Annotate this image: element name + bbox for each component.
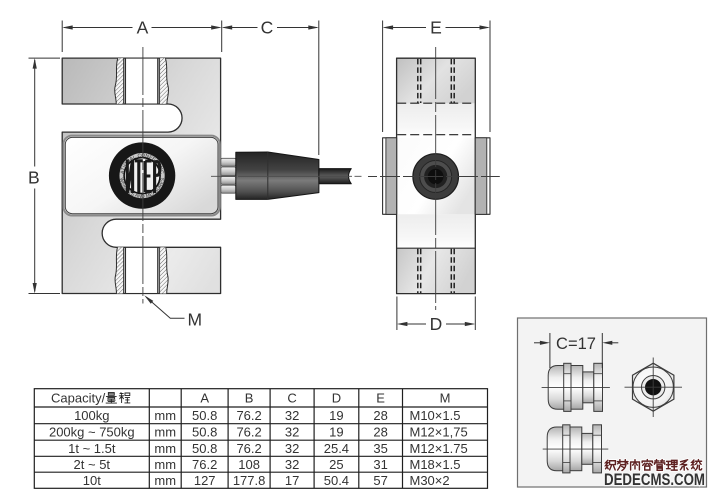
svg-text:108: 108 [238, 457, 260, 472]
svg-text:31: 31 [373, 457, 387, 472]
svg-text:25: 25 [329, 457, 343, 472]
svg-text:mm: mm [154, 408, 176, 423]
svg-text:M18×1.5: M18×1.5 [410, 457, 461, 472]
svg-text:127: 127 [194, 473, 216, 488]
svg-text:M12×1.75: M12×1.75 [410, 441, 468, 456]
svg-text:19: 19 [329, 425, 343, 440]
svg-text:32: 32 [285, 457, 299, 472]
svg-text:mm: mm [154, 425, 176, 440]
svg-text:C: C [261, 18, 274, 38]
svg-text:200kg ~ 750kg: 200kg ~ 750kg [49, 425, 135, 440]
svg-text:D: D [430, 314, 443, 334]
svg-text:32: 32 [285, 408, 299, 423]
svg-text:M10×1.5: M10×1.5 [410, 408, 461, 423]
svg-text:B: B [28, 168, 40, 188]
svg-text:mm: mm [154, 457, 176, 472]
svg-text:35: 35 [373, 441, 387, 456]
svg-text:28: 28 [373, 408, 387, 423]
svg-text:2t ~ 5t: 2t ~ 5t [74, 457, 111, 472]
svg-text:A: A [200, 391, 209, 406]
svg-text:25.4: 25.4 [324, 441, 349, 456]
svg-text:mm: mm [154, 441, 176, 456]
svg-text:17: 17 [285, 473, 299, 488]
svg-text:10t: 10t [83, 473, 101, 488]
svg-text:E: E [430, 18, 442, 38]
svg-text:76.2: 76.2 [236, 408, 261, 423]
svg-text:C=17: C=17 [556, 335, 596, 353]
svg-text:177.8: 177.8 [233, 473, 266, 488]
svg-text:D: D [332, 391, 341, 406]
svg-text:32: 32 [285, 425, 299, 440]
svg-text:100kg: 100kg [74, 408, 109, 423]
svg-text:50.8: 50.8 [192, 408, 217, 423]
svg-text:50.8: 50.8 [192, 441, 217, 456]
svg-text:M: M [188, 309, 203, 329]
svg-text:M: M [440, 391, 451, 406]
svg-text:32: 32 [285, 441, 299, 456]
svg-text:C: C [287, 391, 296, 406]
svg-text:50.8: 50.8 [192, 425, 217, 440]
svg-text:57: 57 [373, 473, 387, 488]
svg-text:B: B [245, 391, 254, 406]
svg-text:28: 28 [373, 425, 387, 440]
svg-text:1t ~ 1.5t: 1t ~ 1.5t [68, 441, 116, 456]
svg-text:19: 19 [329, 408, 343, 423]
svg-text:Capacity/: Capacity/ [51, 391, 106, 406]
svg-text:DEDECMS.COM: DEDECMS.COM [604, 471, 705, 489]
svg-text:M30×2: M30×2 [410, 473, 450, 488]
svg-text:50.4: 50.4 [324, 473, 349, 488]
svg-text:76.2: 76.2 [236, 441, 261, 456]
svg-text:E: E [376, 391, 385, 406]
svg-text:76.2: 76.2 [236, 425, 261, 440]
svg-text:76.2: 76.2 [192, 457, 217, 472]
svg-text:A: A [137, 18, 149, 38]
svg-text:mm: mm [154, 473, 176, 488]
svg-text:M12×1,75: M12×1,75 [410, 425, 468, 440]
